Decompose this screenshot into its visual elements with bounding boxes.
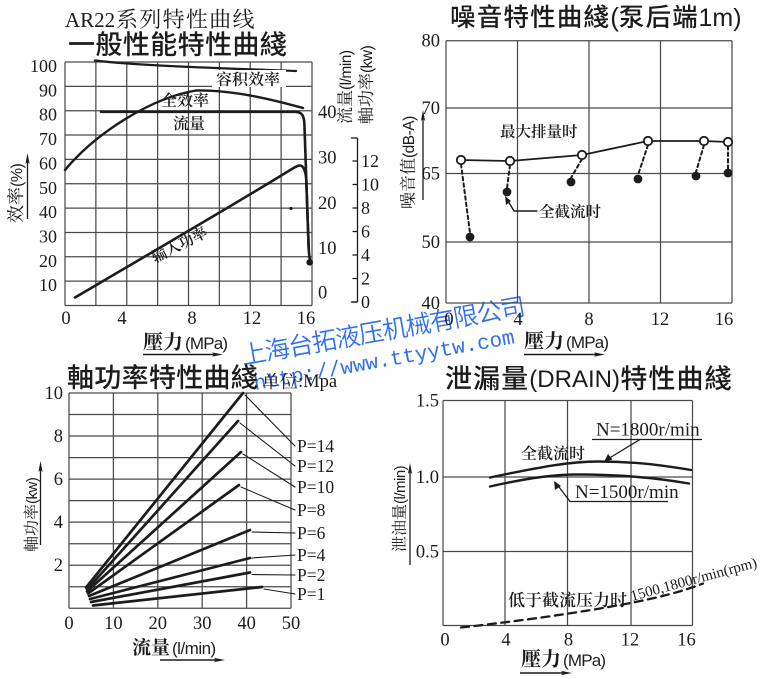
svg-text:40: 40 <box>318 103 337 123</box>
svg-text:40: 40 <box>39 202 57 222</box>
svg-text:(kw): (kw) <box>359 45 376 73</box>
svg-text:P=8: P=8 <box>297 500 326 520</box>
svg-text:4: 4 <box>117 309 126 329</box>
svg-text:50: 50 <box>422 233 441 253</box>
svg-text:16: 16 <box>297 309 316 329</box>
svg-text:70: 70 <box>422 99 441 119</box>
svg-text:16: 16 <box>677 631 696 651</box>
svg-text:0: 0 <box>64 614 73 634</box>
svg-text:4: 4 <box>513 310 522 330</box>
svg-text:70: 70 <box>39 129 57 149</box>
svg-text:50: 50 <box>282 614 301 634</box>
svg-text:0: 0 <box>61 309 70 329</box>
svg-text:P=1: P=1 <box>297 584 325 604</box>
svg-text:P=6: P=6 <box>297 523 326 543</box>
svg-text:P=2: P=2 <box>297 565 325 585</box>
svg-text:4: 4 <box>501 631 510 651</box>
svg-text:0: 0 <box>318 284 327 304</box>
svg-text:4: 4 <box>54 513 63 533</box>
svg-text:60: 60 <box>39 153 57 173</box>
svg-text:8: 8 <box>54 427 63 447</box>
svg-text:10: 10 <box>318 239 337 259</box>
svg-text:20: 20 <box>39 251 57 271</box>
svg-text:6: 6 <box>361 222 370 242</box>
svg-text:10: 10 <box>45 384 64 404</box>
svg-text:(: ( <box>610 2 619 32</box>
svg-text:0: 0 <box>440 631 449 651</box>
svg-text:90: 90 <box>39 80 57 100</box>
svg-text:(DRAIN): (DRAIN) <box>529 366 620 393</box>
svg-text:P=10: P=10 <box>297 477 334 497</box>
svg-text:80: 80 <box>39 105 57 125</box>
svg-text:40: 40 <box>422 294 441 314</box>
svg-text:(%): (%) <box>9 163 26 187</box>
svg-text:(l/min): (l/min) <box>338 50 355 90</box>
svg-text:P=4: P=4 <box>297 545 326 565</box>
svg-text:12: 12 <box>621 631 640 651</box>
svg-text:4: 4 <box>361 245 370 265</box>
svg-text:(l/min): (l/min) <box>172 639 216 658</box>
svg-text:(MPa): (MPa) <box>185 334 227 353</box>
svg-text:(dB-A): (dB-A) <box>401 116 418 158</box>
svg-text:P=14: P=14 <box>297 436 334 456</box>
svg-text:1.5: 1.5 <box>416 392 439 412</box>
svg-text::Mpa: :Mpa <box>298 372 337 392</box>
svg-text:2: 2 <box>54 556 63 576</box>
svg-text:0: 0 <box>444 310 453 330</box>
svg-text:50: 50 <box>39 178 57 198</box>
svg-text:20: 20 <box>318 194 337 214</box>
svg-text:(MPa): (MPa) <box>566 333 608 352</box>
svg-text:8: 8 <box>187 309 196 329</box>
svg-text:0: 0 <box>361 292 370 312</box>
svg-text:10: 10 <box>104 614 123 634</box>
svg-text:12: 12 <box>243 309 262 329</box>
svg-text:2: 2 <box>361 269 370 289</box>
svg-text:12: 12 <box>361 151 379 171</box>
svg-text:N=1500r/min: N=1500r/min <box>575 482 679 503</box>
svg-text:30: 30 <box>318 149 337 169</box>
svg-text:100: 100 <box>30 56 57 76</box>
svg-text:1.0: 1.0 <box>416 468 439 488</box>
svg-text:AR22: AR22 <box>65 8 115 32</box>
svg-text:8: 8 <box>584 310 593 330</box>
svg-text:8: 8 <box>361 198 370 218</box>
svg-text:(kw): (kw) <box>24 477 41 504</box>
svg-text:40: 40 <box>237 614 256 634</box>
svg-text:12: 12 <box>651 310 670 330</box>
svg-text:10: 10 <box>361 175 379 195</box>
svg-text:6: 6 <box>54 470 63 490</box>
svg-text:8: 8 <box>564 631 573 651</box>
svg-text:16: 16 <box>715 310 734 330</box>
svg-text:(MPa): (MPa) <box>563 651 605 670</box>
svg-text:(l/min): (l/min) <box>392 465 409 504</box>
svg-text:0.5: 0.5 <box>416 543 439 563</box>
svg-text:P=12: P=12 <box>297 456 334 476</box>
svg-text:20: 20 <box>149 614 168 634</box>
svg-text:65: 65 <box>422 165 441 185</box>
svg-text:10: 10 <box>39 275 57 295</box>
svg-text:30: 30 <box>193 614 212 634</box>
svg-text:N=1800r/min: N=1800r/min <box>596 420 700 441</box>
svg-text:1m): 1m) <box>699 4 742 32</box>
svg-text:30: 30 <box>39 226 57 246</box>
svg-text:80: 80 <box>422 32 441 52</box>
